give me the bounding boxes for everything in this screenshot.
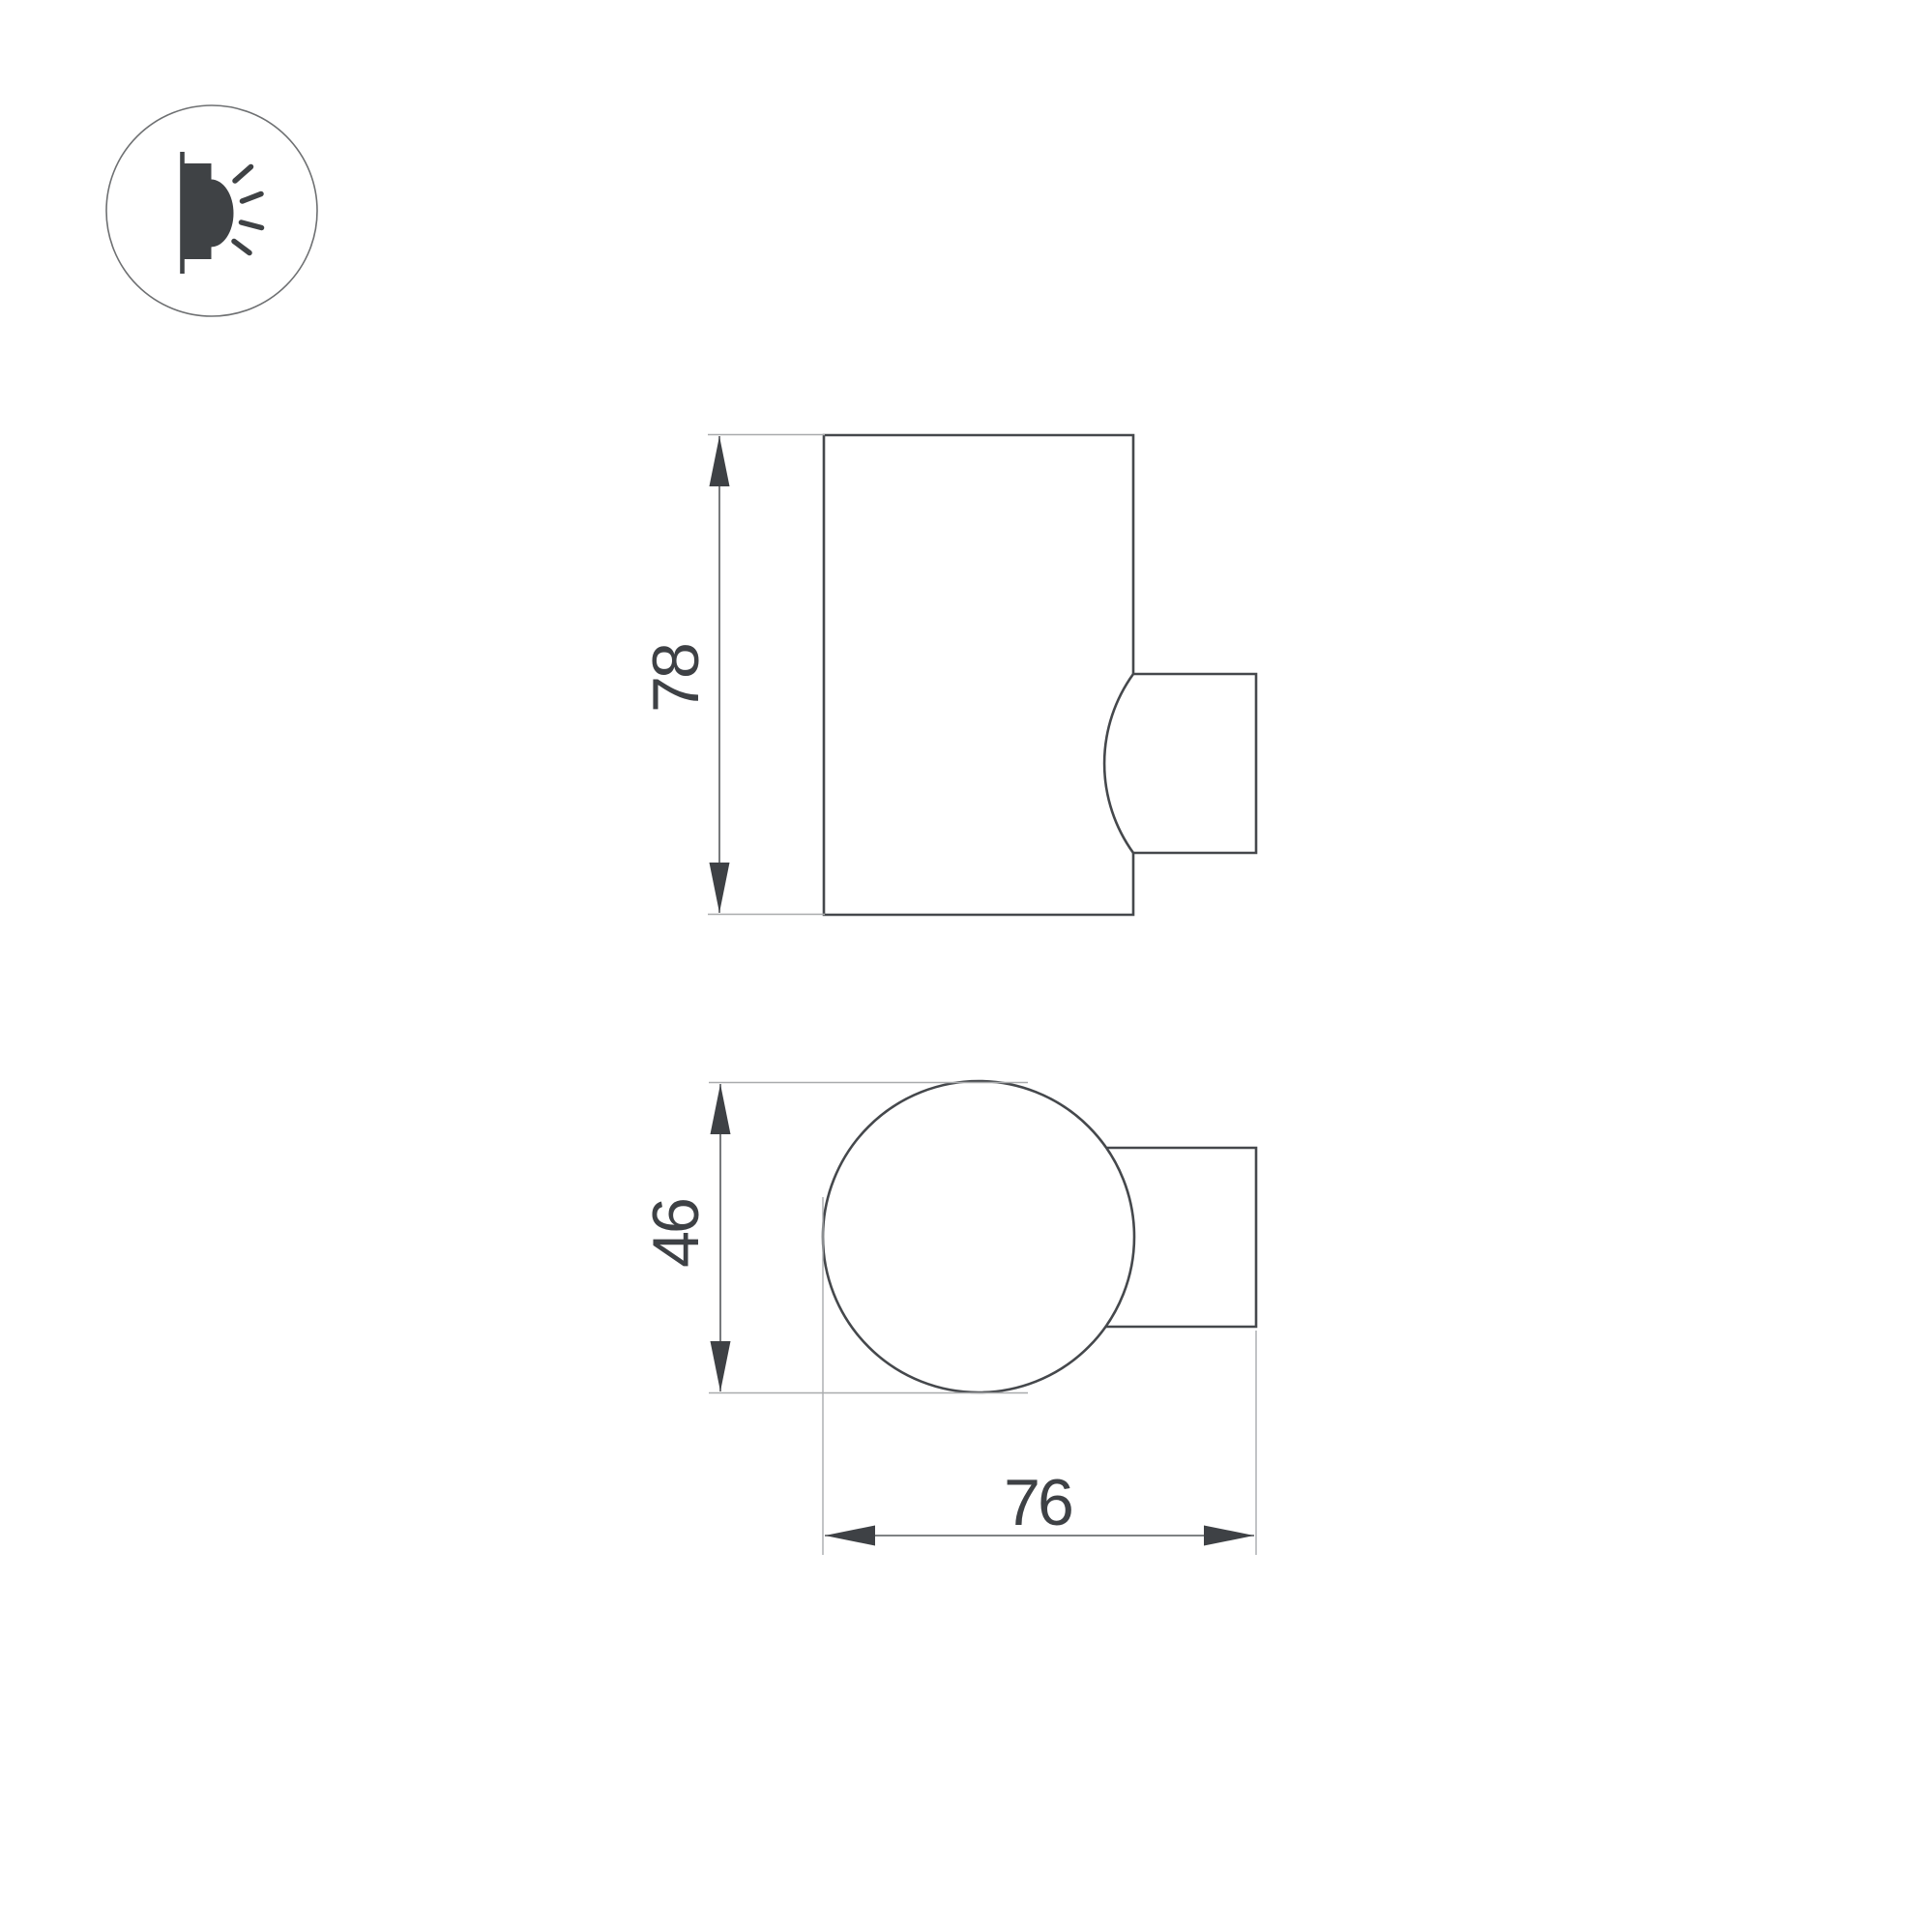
diameter-dimension: 46 [639,1083,1028,1393]
depth-arrow-left-icon [825,1526,875,1546]
wall-lamp-badge [106,105,317,316]
light-ray-icon [235,167,251,182]
drawing-svg: 78 46 76 [0,0,1932,1932]
diameter-dimension-value: 46 [639,1200,713,1268]
height-dimension: 78 [639,435,825,915]
side-view [824,435,1256,915]
height-arrow-down-icon [710,863,730,913]
diameter-arrow-up-icon [711,1084,731,1134]
height-dimension-value: 78 [639,645,713,713]
height-arrow-up-icon [710,436,730,486]
dimension-drawing-page: 78 46 76 [0,0,1932,1932]
top-view-mount-outline [1105,1148,1256,1327]
light-ray-icon [234,242,249,253]
lamp-dome-icon [211,180,233,248]
depth-dimension: 76 [823,1197,1256,1555]
lamp-body-icon [183,163,212,259]
diameter-arrow-down-icon [711,1341,731,1391]
light-ray-icon [242,222,262,228]
side-view-body-outline [824,435,1133,915]
top-view [823,1081,1256,1392]
light-ray-icon [243,194,262,202]
top-view-body-circle [823,1081,1134,1392]
side-view-mount-outline [1104,674,1256,853]
depth-dimension-value: 76 [1004,1466,1071,1539]
depth-arrow-right-icon [1204,1526,1254,1546]
